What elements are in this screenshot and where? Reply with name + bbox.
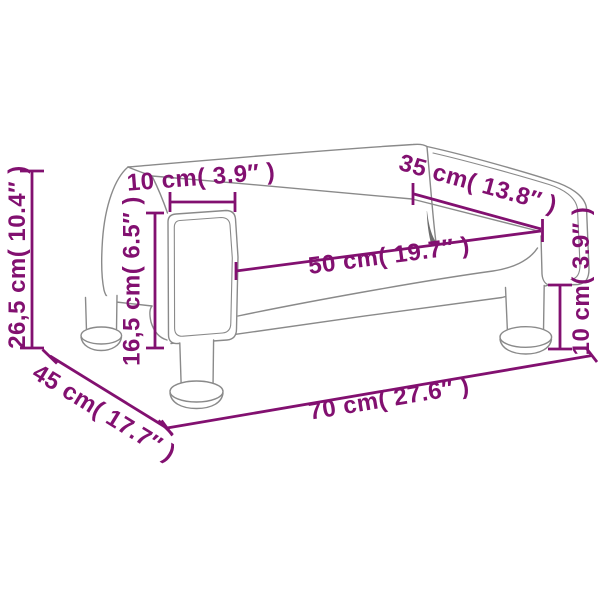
sofa-leg-front-right	[500, 285, 552, 355]
sofa-left-armrest	[168, 211, 238, 344]
sofa-leg-rear-left	[81, 296, 122, 351]
dim-label-armrest-height: 16,5 cm( 6.5″ )	[119, 196, 146, 366]
sofa-right-armrest-left-edge	[541, 236, 551, 286]
dim-label-total-height: 26,5 cm( 10.4″ )	[4, 165, 31, 349]
dim-line-armrest-width	[170, 192, 235, 212]
dim-line-armrest-height	[146, 213, 164, 348]
dim-label-seat-width: 50 cm( 19.7″ )	[307, 232, 472, 280]
dim-label-total-width: 70 cm( 27.6″ )	[307, 372, 472, 425]
diagram-svg: 10 cm( 3.9″ ) 35 cm( 13.8″ ) 50 cm( 19.7…	[0, 0, 600, 600]
dim-label-total-depth: 45 cm( 17.7″ )	[28, 359, 181, 467]
dim-label-leg-height: 10 cm( 3.9″ )	[568, 207, 595, 356]
dim-label-armrest-width: 10 cm( 3.9″ )	[126, 158, 276, 197]
sofa-leg-front-left	[170, 338, 223, 409]
sofa-dimension-diagram: 10 cm( 3.9″ ) 35 cm( 13.8″ ) 50 cm( 19.7…	[0, 0, 600, 600]
sofa-left-side-front-edge	[150, 306, 167, 340]
